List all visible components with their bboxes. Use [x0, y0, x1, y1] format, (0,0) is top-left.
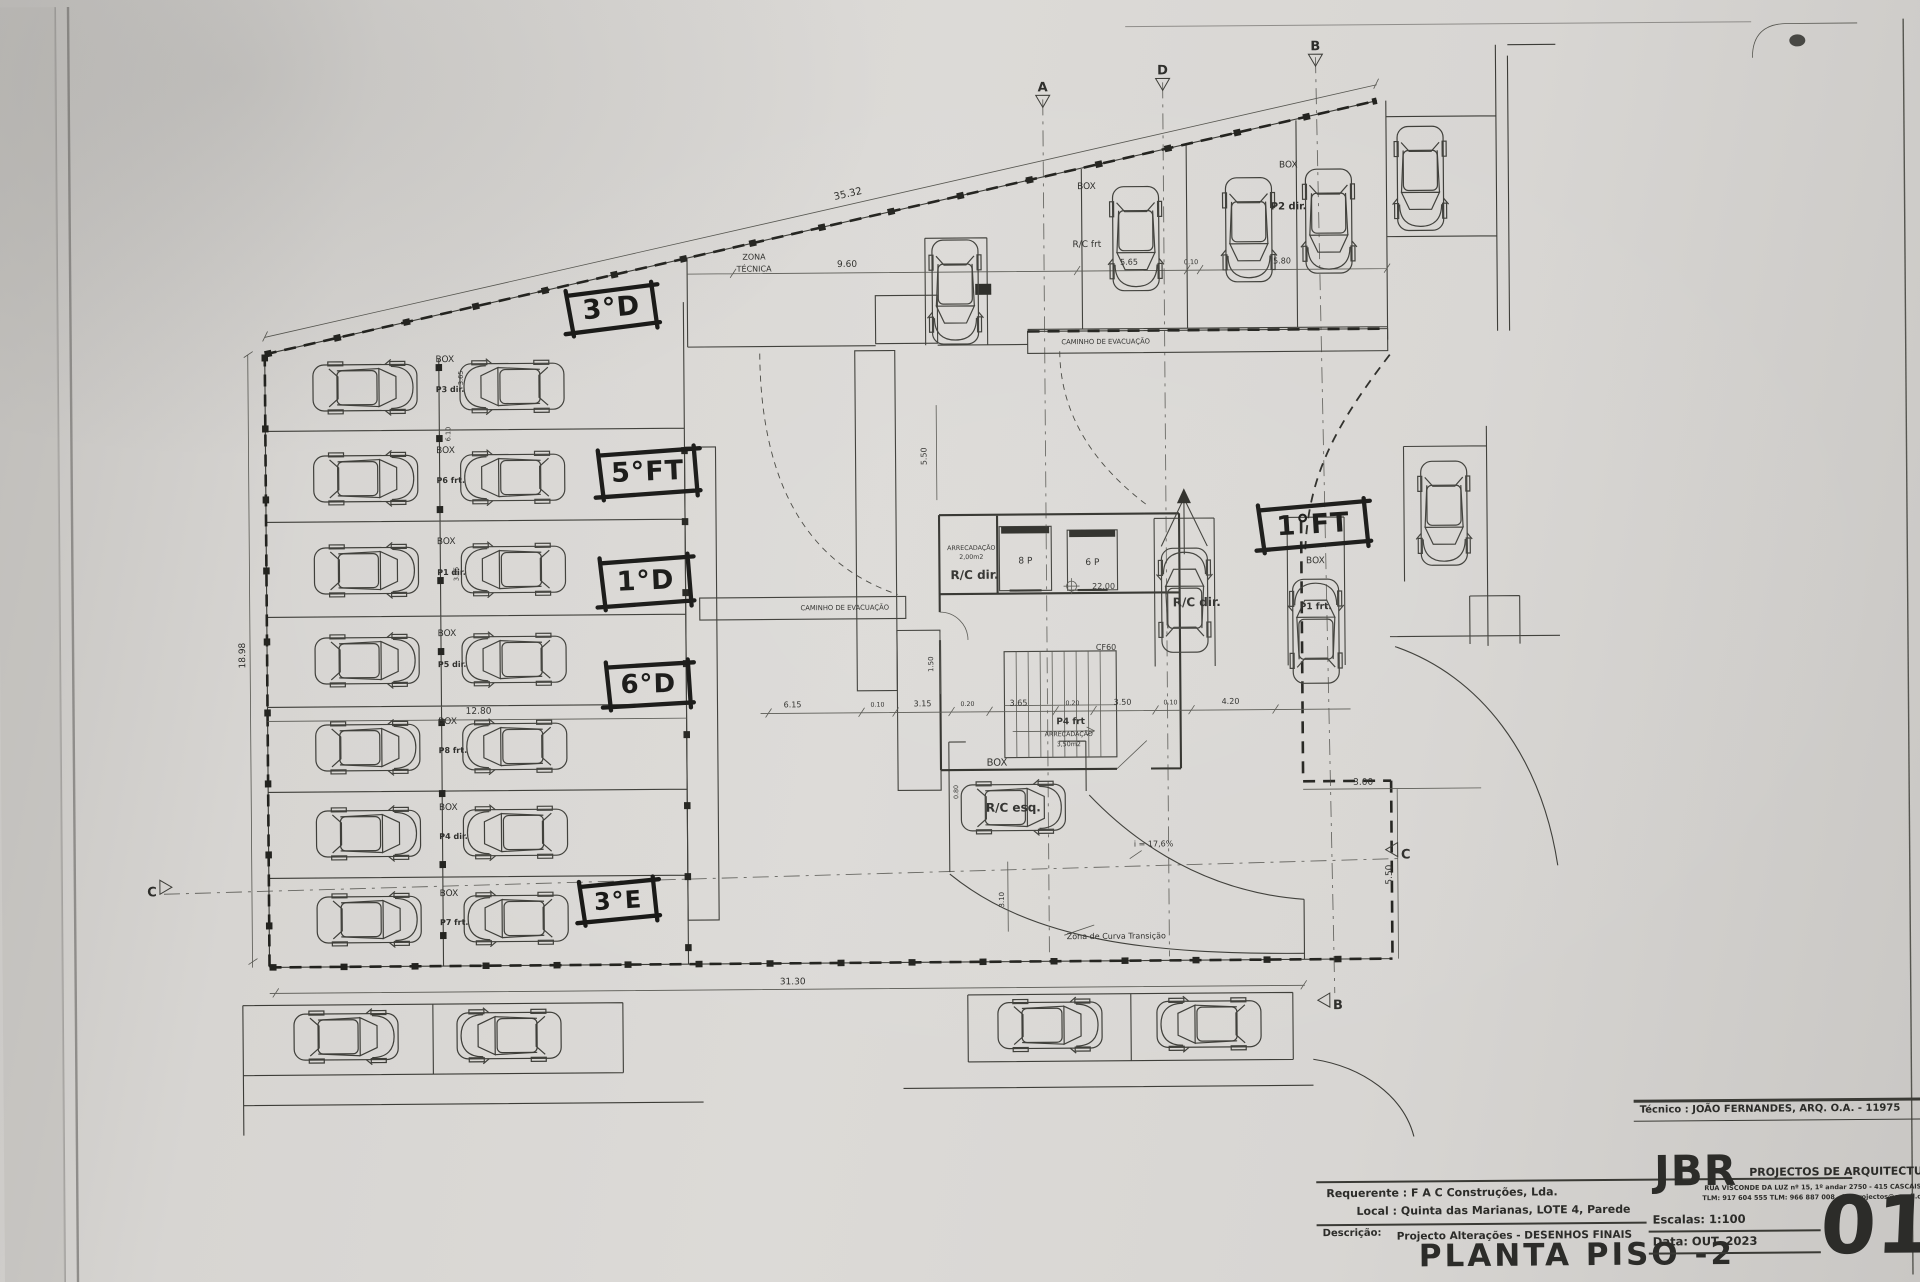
svg-text:B: B [1310, 39, 1320, 54]
svg-text:D: D [1157, 63, 1168, 78]
car-icon [313, 450, 417, 507]
plan-label: R/C dir. [950, 568, 998, 582]
svg-text:3°E: 3°E [593, 885, 643, 916]
plan-label: 0.10 [1184, 258, 1199, 266]
plan-label: 3,50m2 [1057, 741, 1081, 748]
car-icon [1220, 178, 1277, 282]
plan-label: BOX [437, 537, 456, 547]
car-icon [460, 449, 564, 506]
plan-label: 12.80 [466, 707, 492, 717]
plan-label: 0.10 [1163, 699, 1177, 706]
plan-label: 3.00 [1353, 778, 1373, 788]
binder-hole [1789, 34, 1805, 46]
plan-label: 5.80 [1273, 256, 1291, 265]
local-value: Quinta das Marianas, LOTE 4, Parede [1401, 1203, 1631, 1218]
car-icon [460, 358, 564, 415]
plan-label: BOX [438, 717, 457, 727]
plan-label: CAMINHO DE EVACUAÇÃO [1061, 336, 1150, 346]
hatch-areas [683, 292, 1392, 921]
car-icon [316, 805, 420, 862]
car-icon [294, 1008, 398, 1065]
plan-label: BOX [1279, 160, 1298, 170]
section-markers-layer: ADBCCB [141, 38, 1412, 1022]
plan-label: CAMINHO DE EVACUAÇÃO [800, 603, 889, 613]
tech-zone-stair [875, 295, 937, 343]
car-icon [457, 1007, 561, 1064]
car-icon [461, 541, 565, 598]
plan-label: 0.10 [870, 702, 884, 709]
plan-label: 5.50 [1385, 864, 1395, 884]
building-core [937, 282, 1181, 770]
plan-label: 2,00m2 [959, 554, 983, 561]
photo-of-architectural-drawing: BOXBOXBOXBOXBOXBOXBOXP3 dir.P6 frt.P1 di… [0, 0, 1920, 1282]
car-icon [1157, 996, 1261, 1053]
plan-label: P3 dir. [436, 385, 465, 394]
svg-text:C: C [1401, 847, 1411, 862]
car-icon [998, 997, 1102, 1054]
plan-label: 3.10 [998, 892, 1006, 908]
plan-label: CF60 [1096, 643, 1116, 652]
entry-arrow [1161, 488, 1208, 554]
plan-label: 22.00 [1092, 582, 1115, 591]
plan-label: P2 dir. [1271, 201, 1307, 212]
requerente-value: F A C Construções, Lda. [1411, 1185, 1558, 1199]
car-icon [464, 890, 568, 947]
car-icon [316, 719, 420, 776]
plan-label: P4 frt [1056, 717, 1085, 727]
plan-label: P4 dir. [439, 832, 468, 841]
svg-text:5°FT: 5°FT [610, 455, 684, 489]
svg-text:3°D: 3°D [581, 290, 641, 326]
handwritten-annotation: 3°D [561, 281, 661, 337]
perimeter-dashed [263, 101, 1393, 968]
handwritten-annotation: 1°FT [1254, 498, 1373, 554]
plan-label: 31.30 [780, 977, 806, 987]
plan-label: Zona de Curva Transição [1067, 931, 1166, 941]
handwritten-annotation: 3°E [575, 876, 662, 926]
svg-text:1°D: 1°D [616, 564, 675, 597]
plan-label: BOX [1306, 556, 1325, 566]
plan-label: R/C esq. [986, 800, 1041, 814]
plan-label: 5.50 [919, 447, 928, 465]
plan-label: 3.50 [1114, 698, 1132, 707]
car-icon [463, 718, 567, 775]
car-icon [462, 631, 566, 688]
perimeter-piers [263, 101, 1393, 968]
svg-text:1°FT: 1°FT [1276, 507, 1351, 542]
plan-label: R/C dir. [1173, 595, 1221, 609]
plan-label: BOX [439, 803, 458, 813]
plan-label: TÉCNICA [736, 262, 773, 273]
car-icon [314, 542, 418, 599]
svg-text:B: B [1333, 998, 1343, 1013]
handwritten-annotation: 6°D [602, 659, 695, 710]
plan-label: BOX [438, 629, 457, 639]
requerente-label: Requerente : [1326, 1187, 1407, 1201]
road-curves [760, 347, 1560, 1141]
plan-label: 3.65 [1010, 698, 1028, 707]
car-icon [1392, 126, 1449, 230]
plan-label: P1 frt. [1300, 602, 1332, 612]
plan-label: ZONA [742, 253, 766, 262]
plan-label: BOX [1077, 182, 1096, 192]
plan-label: 18.98 [238, 642, 248, 668]
plan-label: 3.05 [452, 567, 460, 582]
plan-label: 0.20 [1065, 700, 1079, 707]
car-icon [463, 804, 567, 861]
svg-text:C: C [147, 885, 157, 900]
plan-label: BOX [987, 758, 1008, 769]
plan-label: 6.10 [444, 427, 452, 442]
plan-label: 6.15 [784, 700, 802, 709]
plan-label: ARRECADAÇÃO [1045, 729, 1093, 738]
svg-text:A: A [1038, 80, 1048, 95]
plan-label: P7 frt. [440, 918, 469, 927]
descricao-label: Descrição: [1323, 1228, 1382, 1239]
plan-label: 9.60 [837, 260, 857, 270]
floor-plan-svg: BOXBOXBOXBOXBOXBOXBOXP3 dir.P6 frt.P1 di… [0, 0, 1920, 1282]
car-icon [313, 359, 417, 416]
firm-name: PROJECTOS DE ARQUITECTURA [1749, 1164, 1920, 1178]
car-icon [1288, 579, 1345, 683]
plan-label: 0.20 [960, 701, 974, 708]
local-label: Local : [1356, 1205, 1397, 1218]
section-marker: B [1318, 993, 1343, 1013]
plan-label: P5 dir. [438, 660, 467, 669]
car-icon [1300, 169, 1357, 273]
data-field: Data: OUT. 2023 [1653, 1234, 1758, 1249]
plan-label: BOX [440, 889, 459, 899]
drawing-sheet: BOXBOXBOXBOXBOXBOXBOXP3 dir.P6 frt.P1 di… [0, 0, 1920, 1282]
plan-label: 4.20 [1222, 697, 1240, 706]
sheet-edge-lines [0, 0, 1913, 1282]
plan-label: BOX [436, 446, 455, 456]
handwritten-annotation: 1°D [595, 553, 695, 610]
plan-label: 3.15 [914, 699, 932, 708]
plan-label: P6 frt. [436, 476, 465, 485]
walls-thin [235, 44, 1563, 1135]
car-icon [1416, 461, 1473, 565]
plan-label: 0.80 [953, 785, 960, 799]
car-icon [315, 632, 419, 689]
plan-label: 1.50 [927, 656, 935, 672]
plan-label: ARRECADAÇÃO [947, 543, 995, 552]
plan-label: 35.32 [833, 186, 863, 203]
plan-label: BOX [435, 355, 454, 365]
plan-label: P8 frt. [439, 746, 468, 755]
car-icon [1107, 186, 1164, 290]
car-icon [927, 240, 984, 344]
plan-label: 8 P [1018, 556, 1033, 566]
plan-label: 3.65 [457, 371, 465, 386]
plan-label: R/C frt [1072, 240, 1101, 250]
labels-layer: BOXBOXBOXBOXBOXBOXBOXP3 dir.P6 frt.P1 di… [234, 160, 1395, 992]
section-marker: C [147, 880, 172, 900]
tecnico-line: Técnico : JOÃO FERNANDES, ARQ. O.A. - 11… [1640, 1103, 1901, 1116]
escalas: Escalas: 1:100 [1653, 1212, 1746, 1227]
plan-label: i = 17,6% [1134, 839, 1174, 848]
sheet-number: 01 [1819, 1178, 1920, 1272]
plan-label: 5.65 [1120, 258, 1138, 267]
svg-text:6°D: 6°D [620, 669, 676, 700]
plan-label: 6 P [1085, 558, 1100, 568]
car-icon [317, 891, 421, 948]
